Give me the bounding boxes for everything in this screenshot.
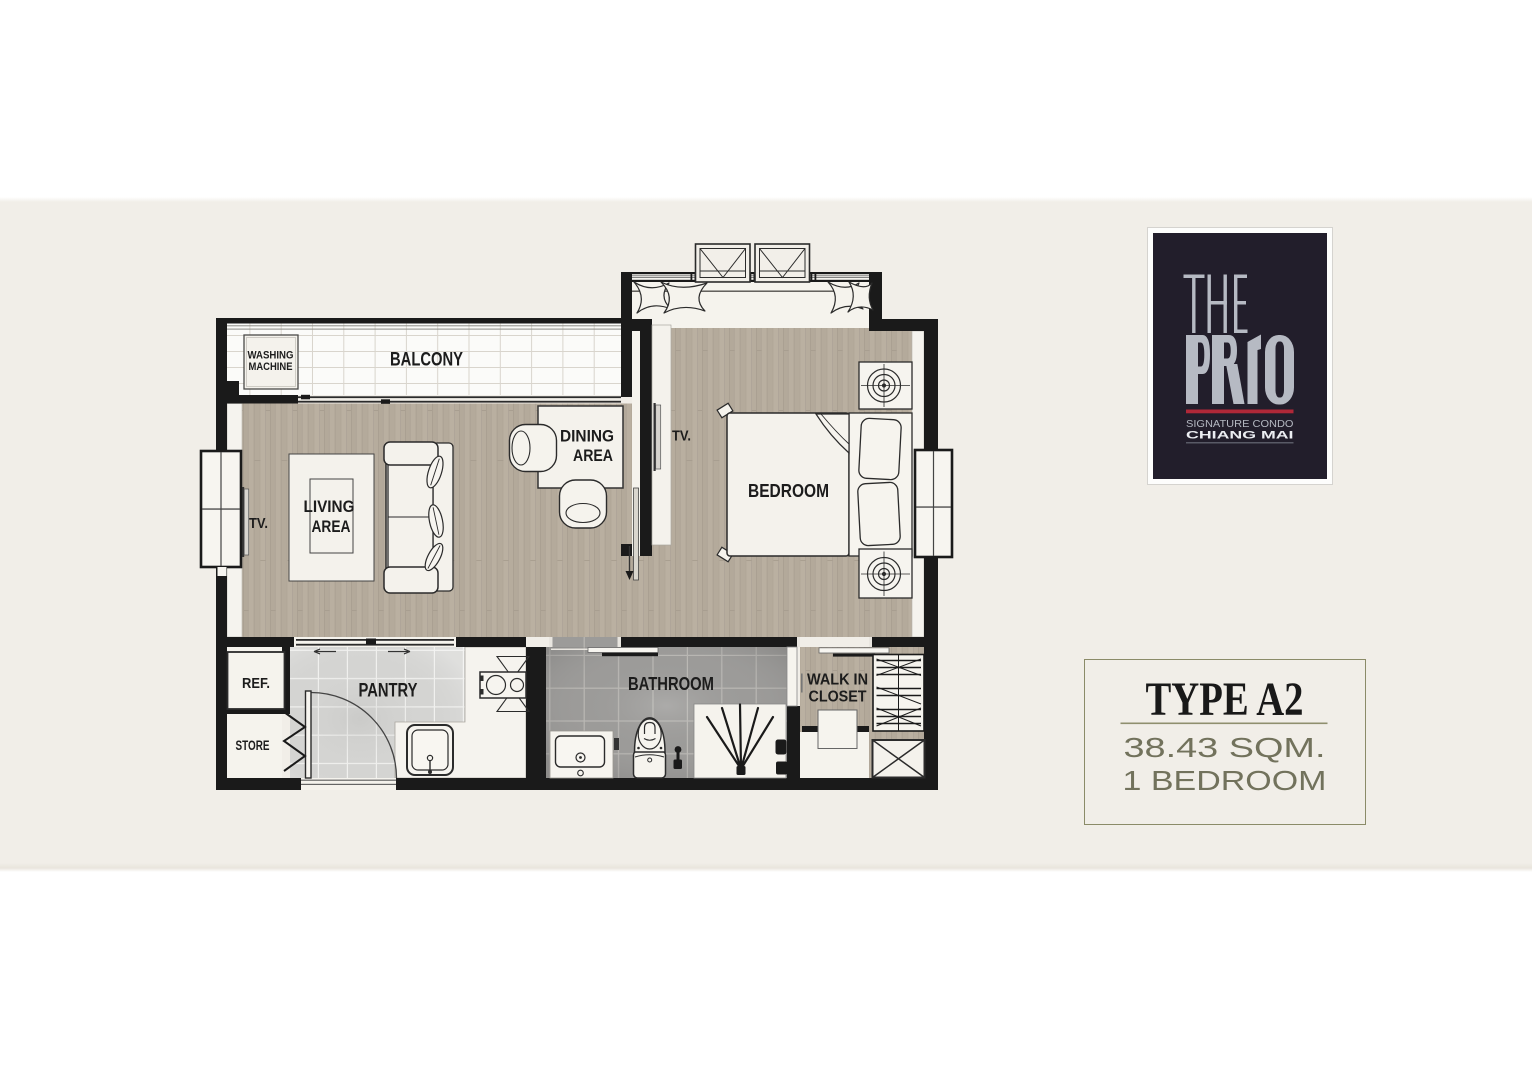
svg-text:1 BEDROOM: 1 BEDROOM [1123,765,1327,796]
svg-text:AREA: AREA [573,446,613,465]
svg-text:CHIANG MAI: CHIANG MAI [1186,430,1294,442]
svg-text:REF.: REF. [242,675,270,692]
svg-text:PANTRY: PANTRY [359,681,418,702]
svg-text:TV.: TV. [249,515,268,532]
svg-text:STORE: STORE [236,738,270,753]
svg-text:BATHROOM: BATHROOM [628,673,714,694]
svg-text:TYPE A2: TYPE A2 [1146,674,1304,726]
svg-text:AREA: AREA [312,518,351,536]
svg-text:CLOSET: CLOSET [809,689,867,706]
svg-text:WALK IN: WALK IN [807,672,868,689]
svg-text:SIGNATURE CONDO: SIGNATURE CONDO [1186,419,1294,430]
svg-text:TV.: TV. [672,428,691,445]
svg-text:DINING: DINING [560,427,614,446]
svg-text:MACHINE: MACHINE [249,361,293,373]
svg-text:LIVING: LIVING [304,498,355,516]
svg-text:BALCONY: BALCONY [390,350,463,371]
svg-text:WASHING: WASHING [248,350,294,362]
svg-text:38.43 SQM.: 38.43 SQM. [1124,732,1326,763]
svg-text:BEDROOM: BEDROOM [748,480,829,501]
